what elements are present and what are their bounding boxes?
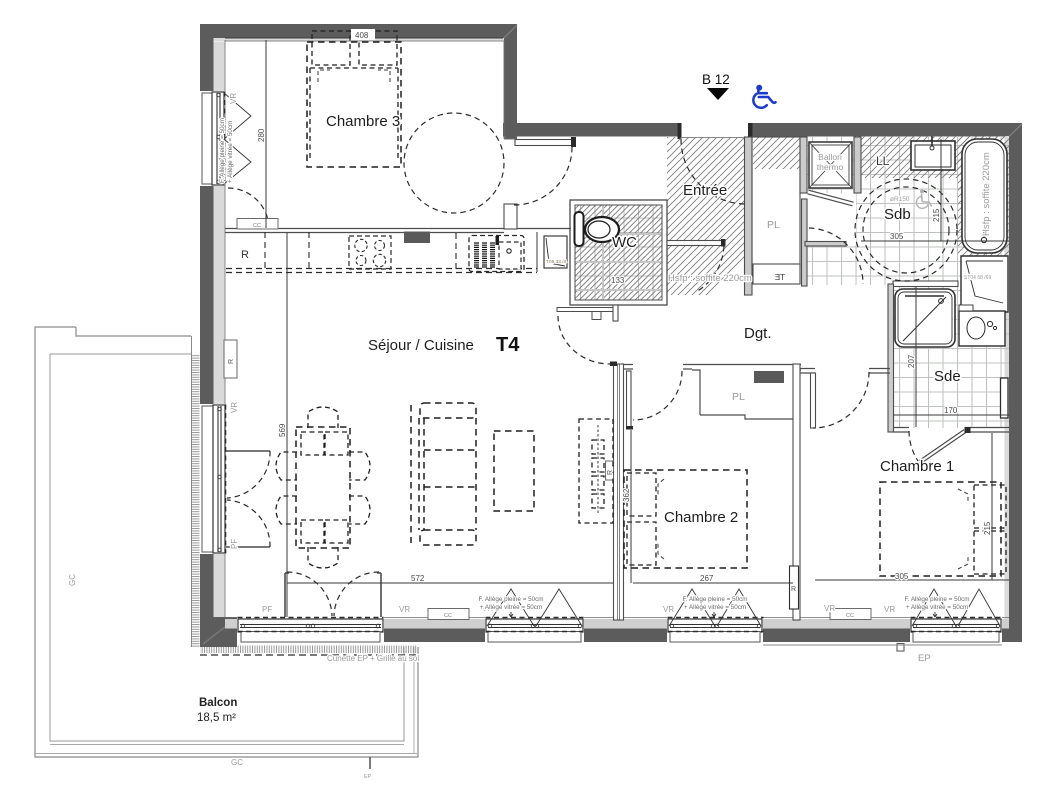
svg-text:+ Allège vitrée = 50cm: + Allège vitrée = 50cm: [684, 604, 746, 611]
svg-text:Sdb: Sdb: [884, 206, 911, 223]
svg-text:CC: CC: [846, 613, 854, 619]
svg-text:408: 408: [355, 31, 369, 40]
svg-text:VR: VR: [824, 604, 835, 613]
svg-text:133: 133: [611, 276, 625, 285]
svg-text:EP: EP: [364, 774, 372, 780]
svg-text:R: R: [241, 249, 249, 261]
svg-text:Balcon: Balcon: [199, 697, 237, 709]
svg-text:Cunette EP + Grille au sol: Cunette EP + Grille au sol: [327, 654, 419, 663]
svg-text:Ballon: Ballon: [818, 152, 842, 162]
svg-text:18,5 m²: 18,5 m²: [197, 712, 236, 724]
svg-text:F. Allège pleine = 50cm: F. Allège pleine = 50cm: [683, 596, 748, 603]
svg-text:F. Allège pleine = 50cm: F. Allège pleine = 50cm: [479, 596, 544, 603]
svg-text:Chambre 2: Chambre 2: [664, 509, 738, 526]
svg-text:Séjour / Cuisine: Séjour / Cuisine: [368, 337, 474, 354]
svg-text:ST04 68 /69: ST04 68 /69: [964, 275, 991, 281]
svg-text:LL: LL: [876, 154, 890, 168]
svg-text:305: 305: [895, 572, 909, 581]
svg-text:+ Allège vitrée = 50cm: + Allège vitrée = 50cm: [906, 604, 968, 611]
svg-text:Chambre 1: Chambre 1: [880, 458, 954, 475]
svg-text:215: 215: [932, 208, 941, 222]
svg-text:GC: GC: [68, 574, 77, 586]
svg-text:R: R: [791, 586, 796, 593]
svg-text:GC: GC: [231, 758, 243, 767]
svg-text:F. Allège pleine = 50cm: F. Allège pleine = 50cm: [905, 596, 970, 603]
svg-text:TE: TE: [775, 273, 785, 282]
svg-text:VR: VR: [884, 605, 895, 614]
svg-text:B 12: B 12: [702, 72, 730, 87]
svg-text:thermo: thermo: [817, 162, 844, 172]
svg-text:215: 215: [983, 521, 992, 535]
svg-text:Hsfp : soffite 220cm: Hsfp : soffite 220cm: [981, 152, 992, 236]
svg-text:PL: PL: [767, 219, 780, 231]
svg-text:362: 362: [622, 488, 631, 502]
svg-text:Entrée: Entrée: [683, 182, 727, 199]
svg-text:207: 207: [907, 354, 916, 368]
svg-text:170: 170: [944, 406, 958, 415]
svg-text:+ Allège vitrée = 50cm: + Allège vitrée = 50cm: [227, 121, 234, 183]
svg-text:572: 572: [411, 574, 425, 583]
svg-text:VR: VR: [399, 605, 410, 614]
svg-text:CC: CC: [444, 613, 452, 619]
svg-text:Dgt.: Dgt.: [744, 325, 772, 342]
svg-text:øR150: øR150: [890, 196, 910, 203]
svg-text:VR: VR: [230, 402, 239, 413]
svg-text:305: 305: [890, 232, 904, 241]
svg-text:PF: PF: [262, 605, 272, 614]
svg-text:F. Allège pleine = 50cm: F. Allège pleine = 50cm: [219, 118, 226, 183]
svg-text:267: 267: [700, 574, 714, 583]
svg-text:280: 280: [257, 128, 266, 142]
svg-text:CC: CC: [253, 223, 261, 229]
svg-text:T05 33 /4: T05 33 /4: [546, 259, 567, 265]
svg-text:R: R: [607, 470, 614, 475]
svg-text:569: 569: [278, 423, 287, 437]
svg-text:VR: VR: [663, 605, 674, 614]
svg-text:PL: PL: [732, 391, 745, 403]
svg-text:+ Allège vitrée = 50cm: + Allège vitrée = 50cm: [480, 604, 542, 611]
svg-text:WC: WC: [612, 234, 637, 251]
svg-text:Chambre 3: Chambre 3: [326, 113, 400, 130]
svg-text:VR: VR: [229, 93, 238, 104]
svg-text:EP: EP: [918, 653, 931, 664]
svg-text:Hsfp : soffite 220cm: Hsfp : soffite 220cm: [668, 273, 752, 284]
svg-text:Sde: Sde: [934, 368, 961, 385]
svg-text:R: R: [228, 359, 235, 364]
svg-text:T4: T4: [496, 334, 520, 356]
svg-text:PF: PF: [230, 539, 239, 549]
